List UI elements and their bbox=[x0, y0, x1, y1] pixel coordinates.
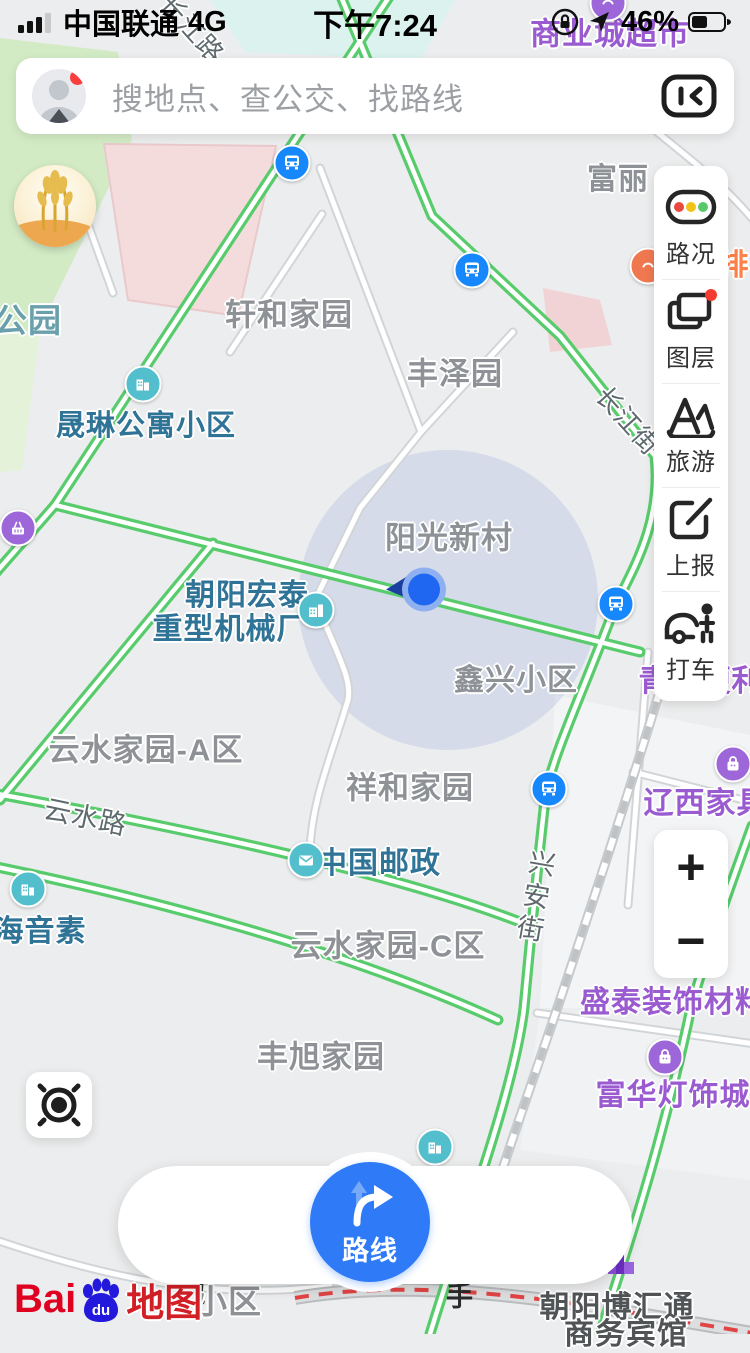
bag-icon[interactable] bbox=[715, 746, 750, 783]
search-input[interactable]: 搜地点、查公交、找路线 bbox=[112, 74, 660, 119]
zoom-out-button[interactable]: − bbox=[654, 904, 728, 978]
travel-icon bbox=[665, 392, 717, 438]
traffic-light-icon bbox=[665, 184, 717, 230]
traffic-button[interactable]: 路况 bbox=[654, 176, 728, 279]
map-label[interactable]: 商务宾馆 bbox=[564, 1309, 688, 1353]
layers-button[interactable]: 图层 bbox=[654, 280, 728, 383]
route-button[interactable]: 路线 bbox=[310, 1162, 430, 1282]
logo-bai: Bai bbox=[14, 1277, 76, 1322]
map-label[interactable]: 晟琳公寓小区 bbox=[56, 402, 236, 444]
layers-icon bbox=[664, 288, 718, 334]
map-label[interactable]: 富华灯饰城 bbox=[596, 1070, 750, 1114]
voice-assistant-icon[interactable] bbox=[660, 73, 718, 119]
taxi-button[interactable]: 打车 bbox=[654, 592, 728, 695]
svg-text:du: du bbox=[92, 1302, 110, 1319]
travel-label: 旅游 bbox=[666, 442, 716, 477]
report-button[interactable]: 上报 bbox=[654, 488, 728, 591]
travel-button[interactable]: 旅游 bbox=[654, 384, 728, 487]
traffic-label: 路况 bbox=[666, 234, 716, 269]
locate-me-button[interactable] bbox=[26, 1072, 92, 1138]
bus-icon[interactable] bbox=[598, 586, 635, 623]
map-label: 轩和家园 bbox=[225, 290, 353, 335]
building-icon[interactable] bbox=[10, 871, 47, 908]
map-canvas[interactable] bbox=[0, 0, 750, 1334]
factory-icon[interactable] bbox=[298, 592, 335, 629]
map-label[interactable]: 中国邮政 bbox=[317, 838, 441, 882]
baidu-paw-icon: du bbox=[78, 1277, 124, 1323]
map-label[interactable]: 海音素 bbox=[0, 906, 87, 950]
bus-icon[interactable] bbox=[454, 252, 491, 289]
map-label[interactable]: 盛泰装饰材料 bbox=[580, 977, 750, 1021]
building-icon[interactable] bbox=[417, 1129, 454, 1166]
bus-icon[interactable] bbox=[274, 145, 311, 182]
turn-right-arrow-icon bbox=[343, 1177, 397, 1227]
basket-icon[interactable] bbox=[0, 510, 37, 547]
location-arrow-icon bbox=[588, 10, 612, 34]
map-label[interactable]: 辽西家具城 bbox=[644, 778, 750, 822]
search-bar[interactable]: 搜地点、查公交、找路线 bbox=[16, 58, 734, 134]
zoom-controls: + − bbox=[654, 830, 728, 978]
status-bar: 中国联通 4G 下午7:24 46% bbox=[0, 0, 750, 44]
notification-dot bbox=[70, 70, 85, 85]
bus-icon[interactable] bbox=[531, 771, 568, 808]
bag-icon[interactable] bbox=[647, 1039, 684, 1076]
map-label: 祥和家园 bbox=[346, 763, 474, 808]
envelope-icon[interactable] bbox=[288, 842, 325, 879]
map-label: 丰旭家园 bbox=[257, 1032, 385, 1077]
route-label: 路线 bbox=[342, 1229, 398, 1268]
current-location-marker bbox=[372, 560, 468, 629]
baidu-maps-app: 商业城超市富丽排轩和家园公园丰泽园晟琳公寓小区长江街长江路阳光新村朝阳宏泰重型机… bbox=[0, 0, 750, 1334]
map-label: 公园 bbox=[0, 294, 62, 342]
map-label[interactable]: 重型机械厂 bbox=[153, 604, 308, 648]
network-label: 4G bbox=[188, 6, 227, 39]
taxi-label: 打车 bbox=[666, 650, 716, 685]
map-label: 云水家园-A区 bbox=[49, 725, 244, 770]
zoom-in-button[interactable]: + bbox=[654, 830, 728, 904]
map-tools-panel: 路况 图层 旅游 bbox=[654, 166, 728, 701]
battery-percent: 46% bbox=[621, 6, 679, 39]
carrier-label: 中国联通 bbox=[63, 1, 179, 43]
map-label: 富丽 bbox=[587, 154, 649, 198]
cellular-signal-icon bbox=[18, 11, 54, 33]
compass-target-icon bbox=[33, 1079, 85, 1131]
battery-icon bbox=[688, 11, 732, 33]
clock: 下午7:24 bbox=[313, 0, 437, 45]
activity-badge[interactable] bbox=[14, 165, 96, 247]
map-label: 鑫兴小区 bbox=[454, 655, 578, 699]
report-icon bbox=[666, 496, 716, 542]
map-label: 丰泽园 bbox=[407, 349, 503, 394]
avatar[interactable] bbox=[32, 69, 86, 123]
layers-label: 图层 bbox=[666, 338, 716, 373]
map-label: 云水家园-C区 bbox=[291, 921, 486, 966]
building-icon[interactable] bbox=[125, 366, 162, 403]
taxi-icon bbox=[663, 600, 719, 646]
report-label: 上报 bbox=[666, 546, 716, 581]
orientation-lock-icon bbox=[551, 8, 579, 36]
map-label: 阳光新村 bbox=[385, 513, 513, 558]
